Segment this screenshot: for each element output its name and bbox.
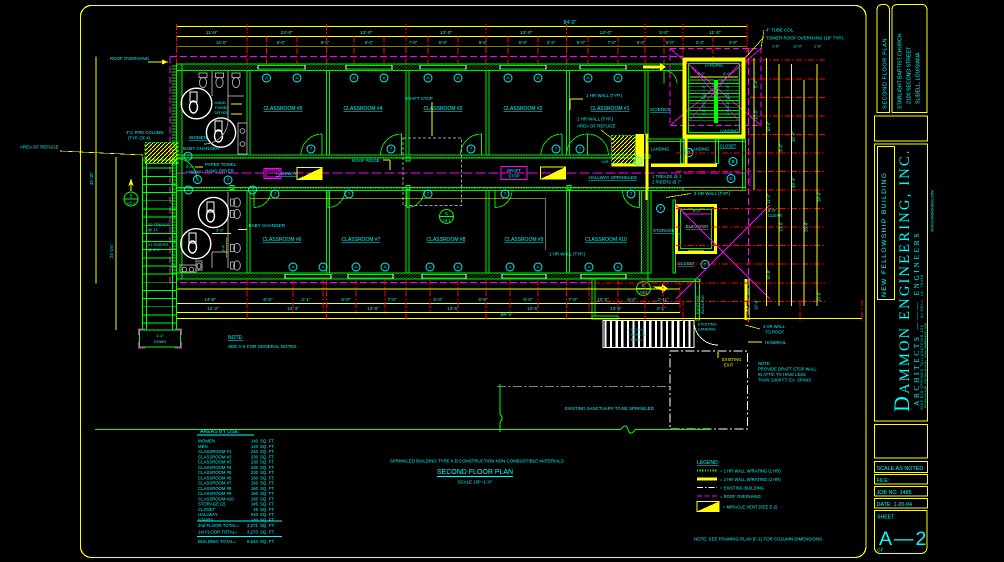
svg-text:FILE:: FILE: bbox=[877, 478, 890, 484]
svg-text:STORAGE: STORAGE bbox=[653, 228, 674, 233]
svg-text:@ 11": @ 11" bbox=[148, 227, 159, 232]
svg-text:13'-0": 13'-0" bbox=[440, 30, 453, 36]
svg-text:PROVIDE DRAFT STOP WALL: PROVIDE DRAFT STOP WALL bbox=[758, 367, 817, 372]
svg-text:3'-0": 3'-0" bbox=[216, 228, 225, 233]
svg-text:3 HR WALL (TYP.): 3 HR WALL (TYP.) bbox=[694, 191, 731, 196]
svg-text:160: 160 bbox=[251, 491, 259, 496]
svg-text:JOB NO. 1485: JOB NO. 1485 bbox=[877, 490, 912, 496]
svg-text:LANDING: LANDING bbox=[720, 129, 739, 134]
svg-text:SECOND FLOOR PLAN: SECOND FLOOR PLAN bbox=[883, 38, 889, 109]
svg-text:3'-4": 3'-4" bbox=[547, 40, 556, 45]
svg-text:SQ. FT.: SQ. FT. bbox=[260, 530, 275, 535]
svg-text:13'-0": 13'-0" bbox=[520, 30, 533, 36]
svg-text:HAND DRYER: HAND DRYER bbox=[205, 169, 234, 174]
svg-text:6'-0": 6'-0" bbox=[523, 297, 533, 302]
svg-text:SCIENCE: SCIENCE bbox=[650, 107, 670, 112]
svg-text:CLASSROOM #8: CLASSROOM #8 bbox=[427, 237, 466, 243]
svg-text:2100 SECOND STREET: 2100 SECOND STREET bbox=[907, 46, 913, 104]
svg-text:5'-4": 5'-4" bbox=[754, 79, 759, 88]
svg-text:7: 7 bbox=[659, 206, 662, 211]
svg-text:CLASSROOM #3: CLASSROOM #3 bbox=[198, 460, 232, 465]
svg-text:SQ. FT.: SQ. FT. bbox=[260, 491, 275, 496]
svg-text:CLASSROOM #2: CLASSROOM #2 bbox=[198, 454, 232, 459]
svg-text:A—2: A—2 bbox=[879, 528, 928, 550]
svg-text:230: 230 bbox=[251, 470, 259, 475]
svg-text:SHEET: SHEET bbox=[877, 515, 895, 521]
svg-text:CLASSROOM #1: CLASSROOM #1 bbox=[591, 106, 630, 112]
svg-text:3'-4": 3'-4" bbox=[696, 40, 705, 45]
svg-text:SQ. FT.: SQ. FT. bbox=[260, 502, 275, 507]
svg-text:SQ. FT.: SQ. FT. bbox=[260, 486, 275, 491]
svg-text:SQ. FT.: SQ. FT. bbox=[260, 539, 275, 544]
svg-text:CLASSROOM #6: CLASSROOM #6 bbox=[198, 475, 232, 480]
svg-text:CLASSROOM #1: CLASSROOM #1 bbox=[198, 449, 232, 454]
svg-text:7'-0": 7'-0" bbox=[608, 40, 617, 45]
svg-text:HALLWAY: HALLWAY bbox=[198, 512, 218, 517]
svg-text:= 2 HR WALL W/RATING (2 HR): = 2 HR WALL W/RATING (2 HR) bbox=[720, 477, 781, 482]
svg-text:SEE A-3 FOR GENERAL NOTES.: SEE A-3 FOR GENERAL NOTES. bbox=[228, 344, 298, 349]
svg-text:5'-0": 5'-0" bbox=[439, 40, 448, 45]
svg-text:= EXISTING BUILDING: = EXISTING BUILDING bbox=[720, 486, 764, 491]
svg-text:HALLWAY SPRINKLED: HALLWAY SPRINKLED bbox=[589, 175, 638, 180]
svg-text:SQ. FT.: SQ. FT. bbox=[260, 512, 275, 517]
svg-text:CLOSET: CLOSET bbox=[720, 144, 737, 149]
svg-text:SQ. FT.: SQ. FT. bbox=[260, 454, 275, 459]
svg-text:16'-4": 16'-4" bbox=[791, 131, 796, 142]
svg-text:CLASSROOM #4: CLASSROOM #4 bbox=[344, 106, 383, 112]
svg-text:3'-4": 3'-4" bbox=[779, 143, 784, 152]
svg-text:6'-0": 6'-0" bbox=[263, 297, 273, 302]
svg-text:84'-0": 84'-0" bbox=[564, 20, 577, 26]
svg-text:1'-0": 1'-0" bbox=[726, 93, 730, 99]
svg-text:CLOSET: CLOSET bbox=[198, 507, 216, 512]
svg-text:= MIRACLE VENT (SEE E-2): = MIRACLE VENT (SEE E-2) bbox=[723, 505, 778, 510]
svg-text:CLASSROOM #4: CLASSROOM #4 bbox=[198, 465, 232, 470]
svg-text:CLASSROOM #3: CLASSROOM #3 bbox=[424, 106, 463, 112]
svg-text:5'-0": 5'-0" bbox=[365, 40, 374, 45]
svg-text:6'-0": 6'-0" bbox=[433, 297, 443, 302]
svg-text:THAN 3,000 FT. EA. SPANS: THAN 3,000 FT. EA. SPANS bbox=[758, 378, 811, 383]
svg-text:1'-6": 1'-6" bbox=[772, 45, 780, 49]
svg-text:160: 160 bbox=[251, 486, 259, 491]
svg-text:PH 985-643-4180 FAX 985-643-: PH 985-643-4180 FAX 985-643-4181 WWW.DAM… bbox=[923, 322, 927, 408]
svg-text:STORAGE (2): STORAGE (2) bbox=[198, 502, 226, 507]
svg-text:11'-4": 11'-4" bbox=[766, 193, 771, 204]
svg-text:CLASSROOM #10: CLASSROOM #10 bbox=[198, 496, 234, 501]
svg-text:SCALE 1/8"=1'-0": SCALE 1/8"=1'-0" bbox=[458, 480, 493, 485]
svg-text:R.O.: R.O. bbox=[186, 165, 194, 169]
svg-text:AREAS BY USE:: AREAS BY USE: bbox=[200, 429, 239, 435]
svg-text:11'-0": 11'-0" bbox=[709, 30, 721, 36]
svg-text:1'-0": 1'-0" bbox=[726, 101, 730, 107]
svg-text:BABY CHANGER: BABY CHANGER bbox=[183, 146, 220, 151]
svg-text:1'-0": 1'-0" bbox=[726, 85, 730, 91]
svg-text:LANDING: LANDING bbox=[698, 327, 716, 332]
svg-text:PITCH: PITCH bbox=[748, 174, 753, 186]
svg-text:145: 145 bbox=[251, 502, 259, 507]
svg-text:BUILDING TOTAL=: BUILDING TOTAL= bbox=[198, 539, 237, 544]
svg-text:7: 7 bbox=[187, 188, 190, 193]
svg-text:160: 160 bbox=[251, 481, 259, 486]
svg-text:7: 7 bbox=[555, 147, 558, 152]
svg-text:14'-6": 14'-6" bbox=[204, 297, 216, 302]
svg-text:REMAIN: REMAIN bbox=[628, 338, 642, 342]
svg-text:HANDRAIL: HANDRAIL bbox=[765, 340, 787, 345]
svg-text:SQ. FT.: SQ. FT. bbox=[260, 475, 275, 480]
svg-text:7: 7 bbox=[504, 192, 507, 197]
svg-text:CLASSROOM #8: CLASSROOM #8 bbox=[198, 486, 232, 491]
svg-text:7: 7 bbox=[187, 154, 190, 159]
svg-text:13'-6": 13'-6" bbox=[447, 306, 459, 311]
svg-text:7: 7 bbox=[427, 192, 430, 197]
svg-text:7: 7 bbox=[310, 147, 313, 152]
svg-text:(TYP. OF 4): (TYP. OF 4) bbox=[128, 136, 151, 141]
svg-text:7'-0": 7'-0" bbox=[409, 40, 418, 45]
svg-text:34'-10": 34'-10" bbox=[89, 171, 94, 185]
svg-text:SECOND FLOOR PLAN: SECOND FLOOR PLAN bbox=[437, 469, 513, 476]
svg-text:SQ. FT.: SQ. FT. bbox=[260, 460, 275, 465]
svg-text:230: 230 bbox=[251, 465, 259, 470]
svg-text:CLOSET: CLOSET bbox=[678, 261, 695, 266]
svg-text:7: 7 bbox=[227, 178, 230, 183]
svg-text:CLASSROOM #10: CLASSROOM #10 bbox=[585, 237, 627, 243]
svg-text:10'-0": 10'-0" bbox=[754, 109, 759, 120]
svg-text:LANDING: LANDING bbox=[705, 63, 724, 68]
svg-text:5'-0": 5'-0" bbox=[659, 30, 669, 36]
svg-text:1st FLOOR TOTAL=: 1st FLOOR TOTAL= bbox=[198, 530, 238, 535]
svg-text:EXISTING: EXISTING bbox=[722, 357, 742, 362]
svg-text:7: 7 bbox=[579, 147, 582, 152]
svg-text:SQ. FT.: SQ. FT. bbox=[260, 507, 275, 512]
svg-text:SQ. FT.: SQ. FT. bbox=[260, 496, 275, 501]
svg-text:16'-8": 16'-8" bbox=[766, 269, 771, 280]
svg-text:CLEAR: CLEAR bbox=[768, 213, 782, 218]
svg-text:AREA OF REFUGE: AREA OF REFUGE bbox=[577, 124, 616, 129]
svg-text:1'-0": 1'-0" bbox=[702, 93, 706, 99]
svg-text:CLASSROOM #7: CLASSROOM #7 bbox=[342, 237, 381, 243]
svg-text:4'-0": 4'-0" bbox=[729, 40, 738, 45]
svg-text:6,544: 6,544 bbox=[247, 539, 259, 544]
svg-text:3,271: 3,271 bbox=[247, 523, 259, 528]
svg-text:12'-6": 12'-6" bbox=[527, 306, 539, 311]
svg-text:7'-0": 7'-0" bbox=[568, 297, 578, 302]
svg-text:CLASSROOM #9: CLASSROOM #9 bbox=[198, 491, 232, 496]
svg-text:WOMEN: WOMEN bbox=[198, 439, 215, 444]
svg-text:7: 7 bbox=[348, 192, 351, 197]
svg-text:IN ATTIC TO HAVE LESS: IN ATTIC TO HAVE LESS bbox=[758, 372, 806, 377]
svg-text:24'-1¾": 24'-1¾" bbox=[109, 243, 114, 258]
svg-text:SQ. FT.: SQ. FT. bbox=[260, 465, 275, 470]
svg-text:10'-4": 10'-4" bbox=[766, 121, 771, 132]
svg-text:EXIT: EXIT bbox=[724, 363, 734, 368]
svg-text:CLASSROOM #9: CLASSROOM #9 bbox=[505, 237, 544, 243]
svg-text:A3.1: A3.1 bbox=[127, 201, 136, 206]
svg-text:10'-0": 10'-0" bbox=[817, 291, 822, 302]
svg-text:14'-0": 14'-0" bbox=[216, 40, 227, 45]
svg-text:STAIRS TO: STAIRS TO bbox=[628, 333, 647, 337]
svg-text:CLASSROOM #7: CLASSROOM #7 bbox=[198, 481, 232, 486]
svg-text:ROOF OVERHANG: ROOF OVERHANG bbox=[110, 56, 150, 61]
svg-text:SQ. FT.: SQ. FT. bbox=[260, 444, 275, 449]
svg-text:NOTE:: NOTE: bbox=[228, 335, 243, 341]
svg-text:SQ. FT.: SQ. FT. bbox=[260, 481, 275, 486]
svg-text:CLASSROOM #2: CLASSROOM #2 bbox=[504, 106, 543, 112]
svg-text:@ 6¾": @ 6¾" bbox=[148, 247, 161, 252]
svg-text:BABY CHANGER: BABY CHANGER bbox=[249, 223, 286, 228]
svg-text:84'-0": 84'-0" bbox=[501, 312, 514, 318]
svg-text:LEGEND:: LEGEND: bbox=[697, 460, 719, 466]
svg-text:5'-0": 5'-0" bbox=[277, 40, 286, 45]
svg-text:13'-6": 13'-6" bbox=[367, 306, 379, 311]
svg-text:28'-4": 28'-4" bbox=[817, 191, 822, 202]
svg-text:1 HR WALL (TYP.): 1 HR WALL (TYP.) bbox=[586, 93, 623, 98]
svg-text:7: 7 bbox=[390, 147, 393, 152]
svg-text:1 TREADS @ 1': 1 TREADS @ 1' bbox=[652, 174, 682, 179]
svg-text:DRYER: DRYER bbox=[215, 110, 229, 115]
svg-text:230: 230 bbox=[251, 454, 259, 459]
svg-text:140: 140 bbox=[251, 444, 259, 449]
svg-text:140: 140 bbox=[251, 439, 259, 444]
svg-text:7'-2": 7'-2" bbox=[677, 231, 681, 239]
svg-text:5'-0": 5'-0" bbox=[577, 40, 586, 45]
svg-text:MEN: MEN bbox=[198, 444, 208, 449]
svg-text:640: 640 bbox=[251, 512, 259, 517]
svg-text:CLR: CLR bbox=[602, 160, 609, 164]
svg-text:SLIDELL, LOUISIANA: SLIDELL, LOUISIANA bbox=[916, 52, 922, 104]
svg-text:DRAFT STOP: DRAFT STOP bbox=[405, 96, 433, 101]
svg-text:4"∅ PIPE COLUMN: 4"∅ PIPE COLUMN bbox=[126, 130, 163, 135]
svg-text:12'-2": 12'-2" bbox=[207, 306, 219, 311]
svg-text:6'-0": 6'-0" bbox=[341, 297, 351, 302]
svg-text:230: 230 bbox=[251, 460, 259, 465]
svg-text:7'-0": 7'-0" bbox=[387, 297, 397, 302]
svg-text:DATE: 1-20-04: DATE: 1-20-04 bbox=[877, 502, 913, 508]
svg-text:OF: OF bbox=[877, 548, 884, 553]
svg-text:4'-2": 4'-2" bbox=[656, 306, 666, 311]
svg-text:NEW FELLOWSHIP BUILDING: NEW FELLOWSHIP BUILDING bbox=[881, 172, 888, 297]
svg-text:7: 7 bbox=[630, 192, 633, 197]
svg-text:TOWER ROOF OVERHANG (18" TYP.): TOWER ROOF OVERHANG (18" TYP.) bbox=[766, 36, 844, 41]
svg-text:11'-8": 11'-8" bbox=[206, 30, 218, 36]
svg-text:BUILDING: BUILDING bbox=[700, 295, 705, 314]
svg-text:SQ. FT.: SQ. FT. bbox=[260, 439, 275, 444]
svg-text:NOTE: SEE FRAMING PLAN (F-1) F: NOTE: SEE FRAMING PLAN (F-1) FOR COLUMN … bbox=[694, 537, 823, 542]
svg-text:STARLIGHT BAPTIST CHURCH: STARLIGHT BAPTIST CHURCH bbox=[898, 33, 904, 109]
svg-text:= 1 HR WALL W/RATING (1 HR): = 1 HR WALL W/RATING (1 HR) bbox=[720, 469, 781, 474]
svg-text:13'-0": 13'-0" bbox=[360, 30, 373, 36]
svg-text:7: 7 bbox=[274, 192, 277, 197]
svg-text:LANDING: LANDING bbox=[651, 147, 670, 152]
svg-text:3,273: 3,273 bbox=[247, 530, 259, 535]
svg-text:2 RISERS @ 7": 2 RISERS @ 7" bbox=[652, 180, 682, 185]
svg-text:SCALE:AS NOTED: SCALE:AS NOTED bbox=[877, 466, 924, 472]
svg-text:13'-6": 13'-6" bbox=[610, 306, 622, 311]
svg-text:5'-0": 5'-0" bbox=[637, 40, 646, 45]
svg-text:3'-4": 3'-4" bbox=[222, 244, 226, 252]
svg-text:26'-8": 26'-8" bbox=[804, 221, 809, 232]
svg-text:LANDING: LANDING bbox=[186, 170, 203, 174]
svg-text:2 HR WALL (TYP.): 2 HR WALL (TYP.) bbox=[577, 117, 614, 122]
svg-text:1'-0": 1'-0" bbox=[726, 109, 730, 115]
svg-text:160: 160 bbox=[251, 496, 259, 501]
svg-text:5'-0": 5'-0" bbox=[666, 40, 675, 45]
svg-text:13'-0": 13'-0" bbox=[281, 30, 294, 36]
svg-text:CLASSROOM #6: CLASSROOM #6 bbox=[263, 237, 302, 243]
svg-text:AREA OF REFUGE: AREA OF REFUGE bbox=[20, 145, 59, 150]
svg-text:1'-0": 1'-0" bbox=[702, 85, 706, 91]
svg-text:DRAFT: DRAFT bbox=[507, 168, 521, 173]
svg-text:2'-1": 2'-1" bbox=[301, 297, 311, 302]
svg-text:TO ROOF: TO ROOF bbox=[765, 330, 784, 335]
svg-text:4: 4 bbox=[196, 177, 199, 182]
svg-text:SQ. FT.: SQ. FT. bbox=[260, 523, 275, 528]
svg-text:EXISTING SANCTUARY TO BE SPRIN: EXISTING SANCTUARY TO BE SPRINKLED bbox=[565, 406, 654, 411]
svg-text:SQ. FT.: SQ. FT. bbox=[260, 449, 275, 454]
svg-text:7: 7 bbox=[251, 188, 254, 193]
svg-text:1'-0": 1'-0" bbox=[702, 109, 706, 115]
svg-text:DOWN: DOWN bbox=[154, 340, 166, 344]
svg-text:B: B bbox=[731, 159, 734, 164]
svg-text:NOTE:: NOTE: bbox=[758, 361, 771, 366]
svg-text:ROOF RIDGE: ROOF RIDGE bbox=[352, 158, 380, 163]
svg-text:1'-0": 1'-0" bbox=[702, 101, 706, 107]
svg-text:4" TUBE COL.: 4" TUBE COL. bbox=[766, 28, 794, 33]
svg-text:WOMEN: WOMEN bbox=[189, 135, 207, 140]
svg-text:1'-6": 1'-6" bbox=[814, 45, 822, 49]
svg-text:LANDING: LANDING bbox=[691, 147, 710, 152]
svg-text:160: 160 bbox=[251, 475, 259, 480]
svg-text:SPRINKLED BUILDING TYPE X B CO: SPRINKLED BUILDING TYPE X B CONSTRUCTION… bbox=[390, 459, 564, 464]
svg-text:A3.1: A3.1 bbox=[442, 218, 451, 223]
svg-text:3 HR WALL: 3 HR WALL bbox=[763, 324, 786, 329]
svg-text:PAPER TOWEL: PAPER TOWEL bbox=[205, 162, 237, 167]
svg-text:13'-0": 13'-0" bbox=[600, 30, 613, 36]
svg-text:= ROOF OVERHANG: = ROOF OVERHANG bbox=[720, 494, 761, 499]
svg-text:CLASSROOM #5: CLASSROOM #5 bbox=[264, 106, 303, 112]
svg-text:1 HR WALL (TYP.): 1 HR WALL (TYP.) bbox=[549, 252, 586, 257]
svg-text:WWW.DAMMONENG.COM: WWW.DAMMONENG.COM bbox=[931, 190, 935, 232]
svg-text:2nd FLOOR TOTAL=: 2nd FLOOR TOTAL= bbox=[198, 523, 240, 528]
svg-text:45: 45 bbox=[253, 507, 258, 512]
svg-text:STOP: STOP bbox=[508, 174, 520, 179]
svg-text:9'-6": 9'-6" bbox=[321, 40, 330, 45]
svg-text:240: 240 bbox=[251, 449, 259, 454]
svg-text:10'-0": 10'-0" bbox=[754, 299, 759, 310]
svg-text:11'-0": 11'-0" bbox=[793, 45, 803, 49]
svg-text:5'-0": 5'-0" bbox=[519, 40, 528, 45]
svg-text:CLASSROOM #5: CLASSROOM #5 bbox=[198, 470, 232, 475]
svg-text:12'-0": 12'-0" bbox=[779, 221, 784, 232]
svg-text:SQ. FT.: SQ. FT. bbox=[260, 470, 275, 475]
svg-text:A3.1: A3.1 bbox=[639, 290, 648, 295]
svg-text:1'-2": 1'-2" bbox=[156, 334, 164, 338]
svg-text:5: 5 bbox=[130, 194, 133, 199]
svg-text:EXISTING: EXISTING bbox=[628, 328, 645, 332]
svg-text:7: 7 bbox=[470, 147, 473, 152]
svg-text:38'-4": 38'-4" bbox=[791, 177, 796, 188]
